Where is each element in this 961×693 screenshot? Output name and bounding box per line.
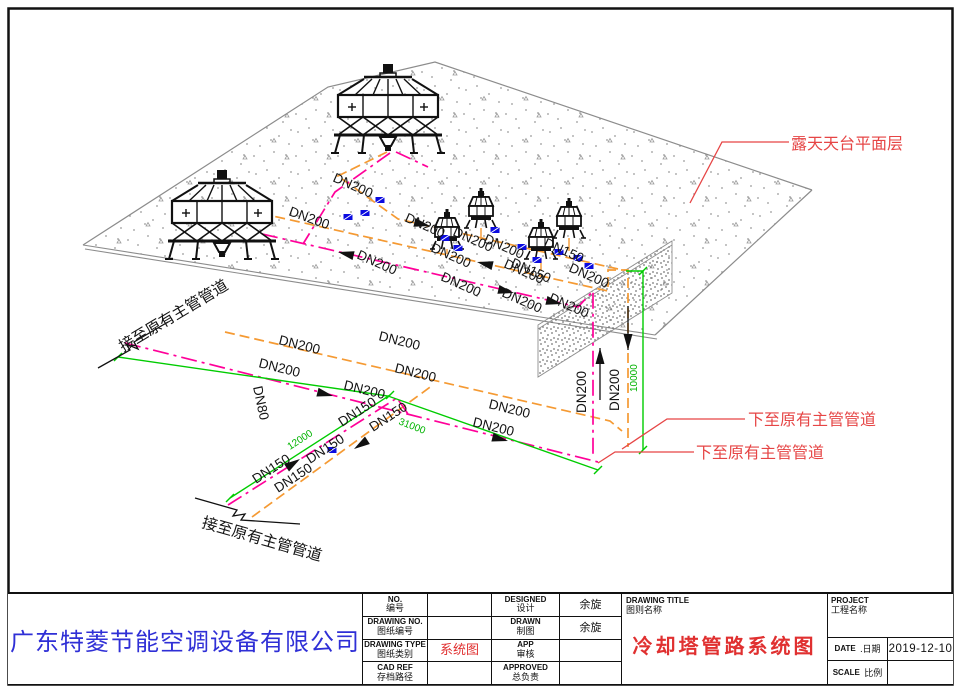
flow-arrow [624,334,633,350]
company-name: 广东特菱节能空调设备有限公司 [10,622,360,657]
field-no-value [428,594,491,617]
titleblock-labels-col2: DESIGNED 设计 DRAWN 制图 APP 审核 APPROVED 总负责 [492,594,560,684]
field-cad-ref-label: CAD REF 存档路径 [363,662,427,684]
drawing-title-header: DRAWING TITLE 图则名称 [626,596,689,616]
pipe-orange-branch [252,385,433,517]
drawing-title-value: 冷却塔管路系统图 [622,630,827,659]
field-drawn-cn: 制图 [516,627,534,637]
field-drawing-type-label: DRAWING TYPE 图纸类别 [363,640,427,663]
cad-drawing-sheet: DN200DN200DN200DN200DN200DN200DN200DN200… [0,0,961,693]
field-drawing-no-label: DRAWING NO. 图纸编号 [363,617,427,640]
field-no-label: NO. 编号 [363,594,427,617]
field-drawn-label: DRAWN 制图 [492,617,559,640]
scale-label: SCALE 比例 [828,661,888,684]
dimension-label: 31000 [397,417,427,437]
scale-value [888,661,953,684]
dimension-label: 10000 [629,364,640,392]
pipe-size-label: DN200 [607,369,622,411]
callout-label: 下至原有主管管道 [748,411,876,429]
field-drawing-no-cn: 图纸编号 [377,627,413,637]
flow-arrow [596,348,605,364]
pipe-size-label: DN80 [250,385,272,422]
titleblock-company-cell: 广东特菱节能空调设备有限公司 [8,594,363,684]
drawing-title-cell: DRAWING TITLE 图则名称 冷却塔管路系统图 [622,594,828,684]
date-label: DATE .日期 [828,638,888,659]
field-drawing-no-value [428,617,491,640]
valve-icon [376,197,385,203]
titleblock-values-col2: 余旋 余旋 [560,594,622,684]
valve-icon [361,210,370,216]
field-no-cn: 编号 [386,604,404,614]
scale-row: SCALE 比例 [828,661,953,684]
pipe-size-label: DN200 [393,360,437,385]
titleblock-labels-col1: NO. 编号 DRAWING NO. 图纸编号 DRAWING TYPE 图纸类… [363,594,428,684]
flow-arrow [354,437,370,449]
date-value: 2019-12-10 [888,638,953,659]
callout-label: 下至原有主管管道 [696,444,824,462]
pipe-size-label: DN200 [487,396,531,421]
field-designed-cn: 设计 [516,604,534,614]
project-date-scale-cell: PROJECT 工程名称 DATE .日期 2019-12-10 SCALE 比… [828,594,953,684]
field-designed-value: 余旋 [560,594,621,617]
field-app-label: APP 审核 [492,640,559,663]
field-drawing-type-cn: 图纸类别 [377,650,413,660]
field-approved-cn: 总负责 [512,673,539,683]
project-cn: 工程名称 [831,605,950,615]
date-row: DATE .日期 2019-12-10 [828,638,953,660]
field-approved-value [560,662,621,684]
valve-icon [344,214,353,220]
drawing-title-en: DRAWING TITLE [626,596,689,605]
leader-down-pipe-2 [598,452,694,463]
field-cad-ref-value [428,662,491,684]
field-app-value [560,640,621,663]
valve-icon [533,257,542,263]
callout-label: 露天天台平面层 [791,135,903,153]
field-app-cn: 审核 [516,650,534,660]
project-en: PROJECT [831,596,950,605]
title-block: 广东特菱节能空调设备有限公司 NO. 编号 DRAWING NO. 图纸编号 D… [8,592,953,684]
field-drawn-value: 余旋 [560,617,621,640]
field-drawing-type-value: 系统图 [428,640,491,663]
pipe-size-label: DN200 [377,328,421,353]
pipe-size-label: DN200 [277,332,321,357]
connection-note: 接至原有主管管道 [116,276,232,355]
pipe-size-label: DN200 [574,371,589,413]
field-cad-ref-cn: 存档路径 [377,673,413,683]
field-designed-label: DESIGNED 设计 [492,594,559,617]
flow-arrow [316,388,333,397]
pipe-size-label: DN200 [257,355,301,380]
drawing-title-cn: 图则名称 [626,605,689,615]
drawing-canvas: DN200DN200DN200DN200DN200DN200DN200DN200… [0,0,961,693]
connection-notes: 接至原有主管管道接至原有主管管道 [116,276,324,565]
project-cell: PROJECT 工程名称 [828,594,953,638]
titleblock-values-col1: 系统图 [428,594,492,684]
field-approved-label: APPROVED 总负责 [492,662,559,684]
